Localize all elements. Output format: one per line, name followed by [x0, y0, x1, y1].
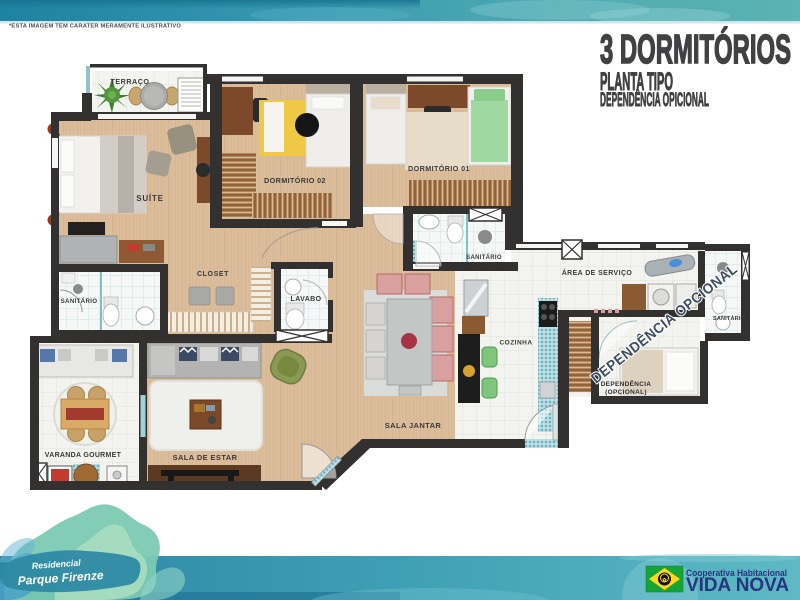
svg-text:*ESTA IMAGEM TEM CARATER MERAM: *ESTA IMAGEM TEM CARATER MERAMENTE ILUST…	[9, 24, 181, 30]
svg-text:DORMITÓRIO 02: DORMITÓRIO 02	[264, 176, 326, 185]
svg-text:SANITÁRIO: SANITÁRIO	[61, 298, 98, 305]
svg-text:SANITÁRIO: SANITÁRIO	[713, 315, 746, 322]
svg-text:3 DORMITÓRIOS: 3 DORMITÓRIOS	[600, 26, 791, 72]
svg-text:VIDA NOVA: VIDA NOVA	[686, 574, 789, 596]
svg-text:SUÍTE: SUÍTE	[136, 194, 164, 203]
svg-text:DEPENDÊNCIA OPICIONAL: DEPENDÊNCIA OPICIONAL	[600, 89, 709, 111]
svg-text:TERRAÇO: TERRAÇO	[110, 77, 149, 86]
svg-text:DORMITÓRIO 01: DORMITÓRIO 01	[408, 164, 470, 173]
svg-text:(OPCIONAL): (OPCIONAL)	[605, 389, 647, 396]
svg-text:SANITÁRIO: SANITÁRIO	[466, 254, 502, 261]
svg-text:SALA JANTAR: SALA JANTAR	[385, 421, 442, 430]
svg-text:SALA DE ESTAR: SALA DE ESTAR	[173, 453, 238, 462]
svg-text:DEPENDÊNCIA: DEPENDÊNCIA	[601, 379, 652, 388]
svg-text:LAVABO: LAVABO	[291, 296, 322, 303]
svg-text:VARANDA GOURMET: VARANDA GOURMET	[45, 452, 122, 459]
svg-text:ÁREA DE SERVIÇO: ÁREA DE SERVIÇO	[562, 268, 633, 277]
svg-text:CLOSET: CLOSET	[197, 271, 229, 278]
svg-text:COZINHA: COZINHA	[499, 340, 532, 347]
